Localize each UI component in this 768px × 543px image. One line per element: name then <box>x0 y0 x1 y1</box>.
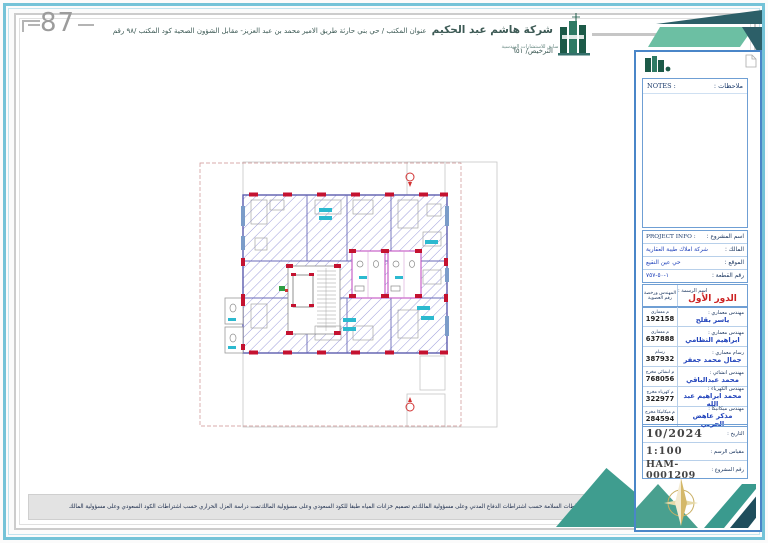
dash-ornament-left <box>28 24 40 26</box>
project-info-box: اسم المشروع : PROJECT INFO : المالك : شر… <box>642 230 748 283</box>
site-value: حي عين النقيع <box>646 260 681 266</box>
disclaimer-left: تمت دراسة العزل الحراري حسب اشتراطات الك… <box>69 504 261 510</box>
company-name: شركة هاشم عبد الحكيم <box>432 24 553 36</box>
parcel-label: رقم القطعة : <box>712 273 744 279</box>
site-label: الموقع : <box>725 260 744 266</box>
project-number-label: رقم المشروع : <box>711 467 744 473</box>
dash-ornament-right <box>78 24 94 26</box>
disclaimer-center: تم تصميم خزانات المياه طبقا للكود السعود… <box>261 504 417 510</box>
scale-label: مقياس الرسم : <box>710 449 744 455</box>
floor-plan <box>195 148 505 440</box>
drawing-name-row: المهندس ورخصة رقم العضوية اسم الرسمة : ا… <box>642 284 748 308</box>
title-block: NOTES : ملاحظات : اسم المشروع : PROJECT … <box>634 50 762 532</box>
engineers-table: م معماري192158 مهندس معماري :ياسر بقلح م… <box>642 306 748 427</box>
footer-disclaimer-strip: تمت دراسة العزل الحراري حسب اشتراطات الك… <box>28 494 632 520</box>
date-value: 10/2024 <box>646 427 703 440</box>
table-row: رسام387932 رسام معماري :جمال محمد جعفر <box>643 347 747 367</box>
license-header-cell: المهندس ورخصة رقم العضوية <box>643 285 678 307</box>
left-wc-rooms <box>225 298 245 353</box>
owner-label: المالك : <box>725 247 744 253</box>
meta-box: التاريخ : 10/2024 مقياس الرسم : 1:100 رق… <box>642 424 748 479</box>
parcel-value: ١-٥٠-٧٥٧ <box>646 273 669 279</box>
scale-value: 1:100 <box>646 446 683 457</box>
dogear-icon <box>745 54 757 68</box>
table-row: م معماري637888 مهندس معماري :ابراهيم الن… <box>643 327 747 347</box>
entry-marker <box>279 286 285 291</box>
drawing-sheet: 87 شركة هاشم عبد الحكيم عنوان المكتب / ح… <box>0 0 768 543</box>
title-block-footer-decoration <box>636 476 756 528</box>
table-row: م انشائي مخرج768056 مهندس انشائي :محمد ع… <box>643 367 747 387</box>
stair-core <box>279 264 341 335</box>
project-title-ar: اسم المشروع : <box>707 234 744 240</box>
notes-label-en: NOTES : <box>647 82 676 90</box>
date-label: التاريخ : <box>727 431 744 437</box>
notes-box: NOTES : ملاحظات : <box>642 78 748 228</box>
bathroom-block <box>349 249 422 298</box>
drawing-name-value: الدور الأول <box>688 294 737 304</box>
title-block-logo-icon <box>644 56 674 76</box>
notes-label-ar: ملاحظات : <box>714 82 743 90</box>
sheet-number: 87 <box>40 8 75 38</box>
header-title-block: شركة هاشم عبد الحكيم عنوان المكتب / حي ب… <box>105 18 553 58</box>
table-row: م كهرباء مخرج322977 مهندس الكهرباء :محمد… <box>643 387 747 407</box>
corner-bracket <box>22 20 40 32</box>
owner-value: شركة املاك طيبة العقارية <box>646 247 708 253</box>
company-logo-icon <box>556 13 592 59</box>
project-title-en: PROJECT INFO : <box>646 234 696 240</box>
table-row: م معماري192158 مهندس معماري :ياسر بقلح <box>643 307 747 327</box>
